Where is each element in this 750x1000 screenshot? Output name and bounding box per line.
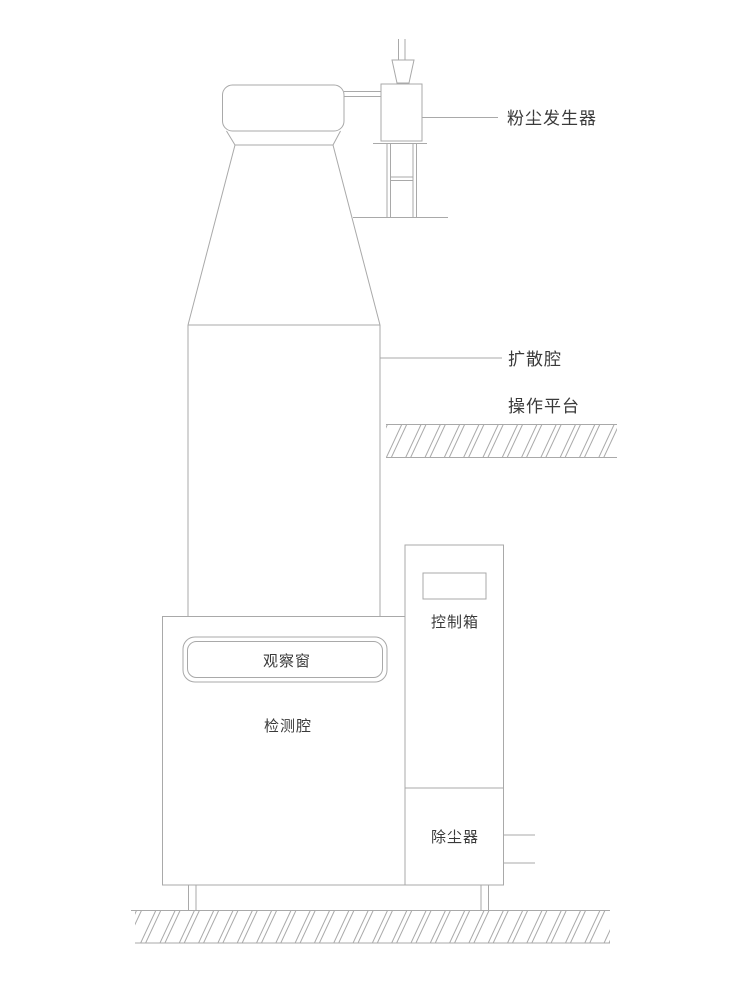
generator-connector-pipe [344,92,381,97]
dust-remover-label: 除尘器 [431,829,479,846]
operating-platform [386,425,617,458]
vessel-top-cap [223,85,345,131]
diffusion-cone [188,145,380,325]
operating-platform-label: 操作平台 [508,397,580,416]
machine-feet [189,885,489,910]
dust-generator-label: 粉尘发生器 [507,109,597,128]
dust-test-equipment-diagram: 粉尘发生器 扩散腔 操作平台 控制箱 观察窗 检测腔 除尘器 [0,0,750,1000]
generator-funnel [392,60,414,83]
dust-remover-outlet-pipes [504,835,536,863]
observation-window-label: 观察窗 [263,652,311,670]
ground [131,911,610,944]
generator-inlet-pipe [399,39,406,60]
dust-generator-box [381,84,422,141]
generator-stand [353,144,448,218]
diffusion-chamber-label: 扩散腔 [508,350,562,369]
equipment-diagram-page: 粉尘发生器 扩散腔 操作平台 控制箱 观察窗 检测腔 除尘器 [0,0,750,1000]
dust-generator-assembly [344,39,448,218]
control-box-display [423,573,486,599]
vessel-neck [227,131,341,145]
detection-chamber-label: 检测腔 [264,718,312,735]
diffusion-chamber-body [188,325,380,617]
control-box-label: 控制箱 [431,614,479,631]
